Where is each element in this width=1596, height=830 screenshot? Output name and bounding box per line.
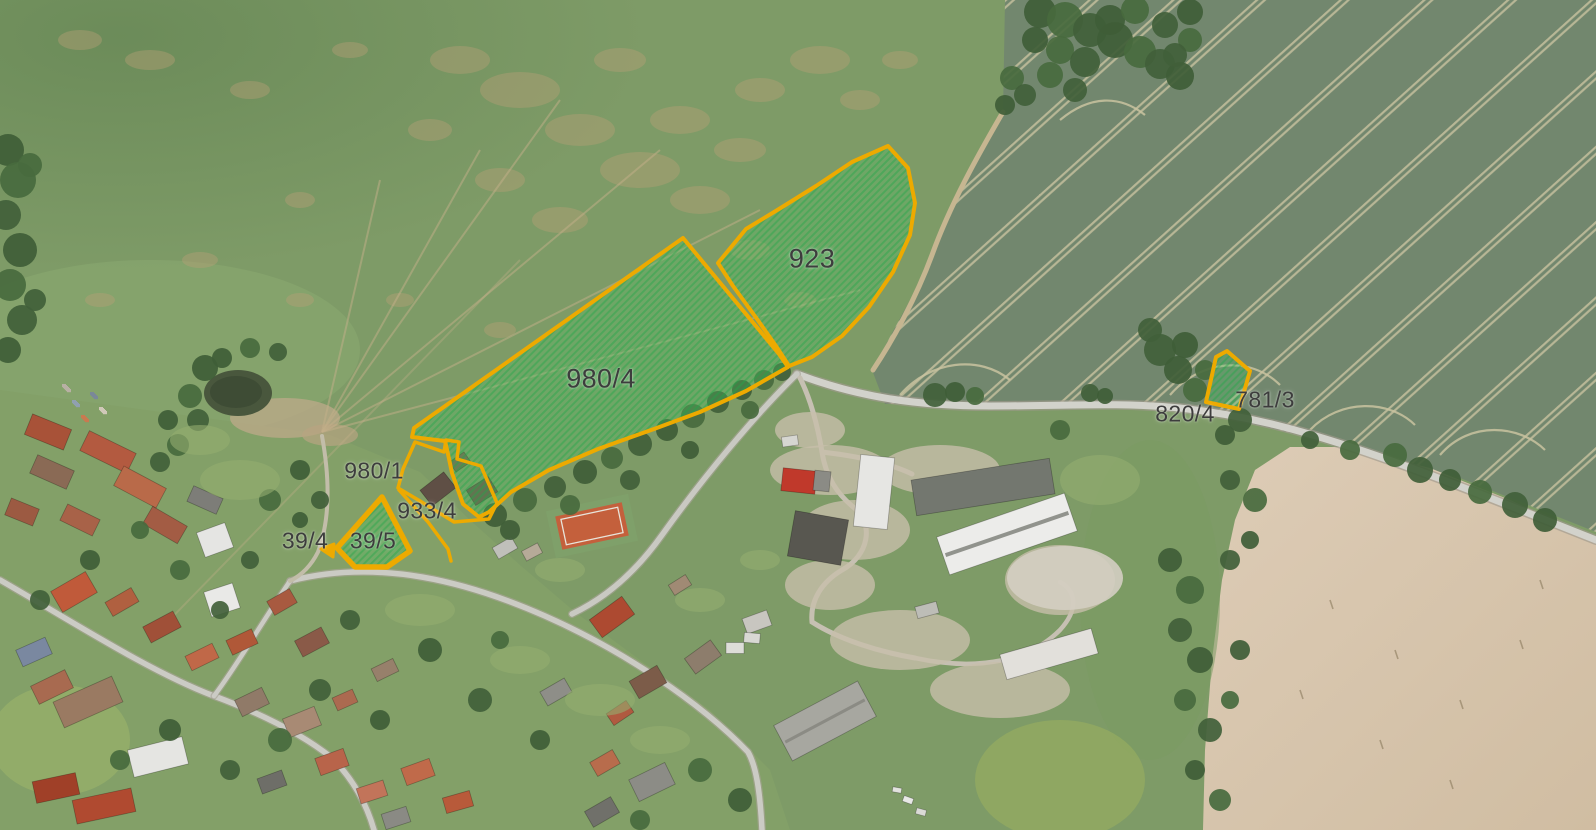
cadastral-map-canvas[interactable]: 980/4 923 781/3 39/5 39/4 980/1 933/4 82… (0, 0, 1596, 830)
orthophoto-layer (0, 0, 1596, 830)
